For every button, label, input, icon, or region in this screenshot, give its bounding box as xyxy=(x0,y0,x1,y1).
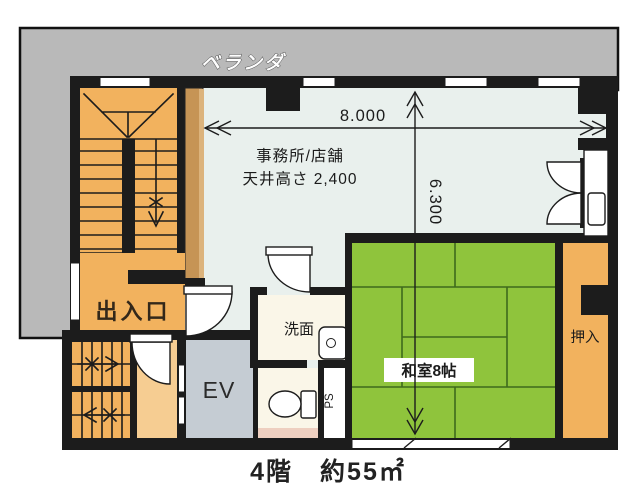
window xyxy=(303,78,335,87)
pillar xyxy=(266,88,300,111)
entrance-room: 出入口 xyxy=(62,253,185,342)
water-heater-icon xyxy=(588,193,605,225)
floor-plan: ベランダ xyxy=(0,0,638,502)
window xyxy=(538,78,580,87)
elevator-label: EV xyxy=(203,377,236,403)
veranda-label: ベランダ xyxy=(201,52,286,74)
window xyxy=(100,78,150,87)
entrance-floor xyxy=(80,253,185,338)
toilet-icon xyxy=(269,391,316,418)
office-ceiling-label: 天井高さ 2,400 xyxy=(242,170,357,188)
window xyxy=(445,78,487,87)
floor-plan-page: ベランダ xyxy=(0,0,638,502)
stair-divider xyxy=(122,139,135,270)
tatami-label: 和室8帖 xyxy=(401,361,457,380)
washroom-label: 洗面 xyxy=(284,321,314,338)
pipe-space-label: PS xyxy=(324,393,336,409)
closet-label: 押入 xyxy=(571,329,600,346)
dimension-height-label: 6.300 xyxy=(426,179,444,225)
partition-edge xyxy=(199,89,204,280)
sink-icon xyxy=(319,327,348,359)
closet-pillar xyxy=(581,285,608,315)
toilet-step xyxy=(258,428,318,438)
window xyxy=(352,440,510,449)
small-stairs xyxy=(62,330,137,450)
toilet-room xyxy=(258,368,318,438)
washroom: 洗面 xyxy=(250,287,352,368)
tatami-floor xyxy=(352,243,555,438)
closet: 押入 xyxy=(555,233,608,438)
caption: 4階 約55㎡ xyxy=(250,457,406,486)
office-name-label: 事務所/店舗 xyxy=(256,147,344,165)
entrance-label: 出入口 xyxy=(95,299,170,324)
window xyxy=(71,263,80,320)
pipe-space: PS xyxy=(318,368,345,438)
dimension-width-label: 8.000 xyxy=(340,107,386,125)
